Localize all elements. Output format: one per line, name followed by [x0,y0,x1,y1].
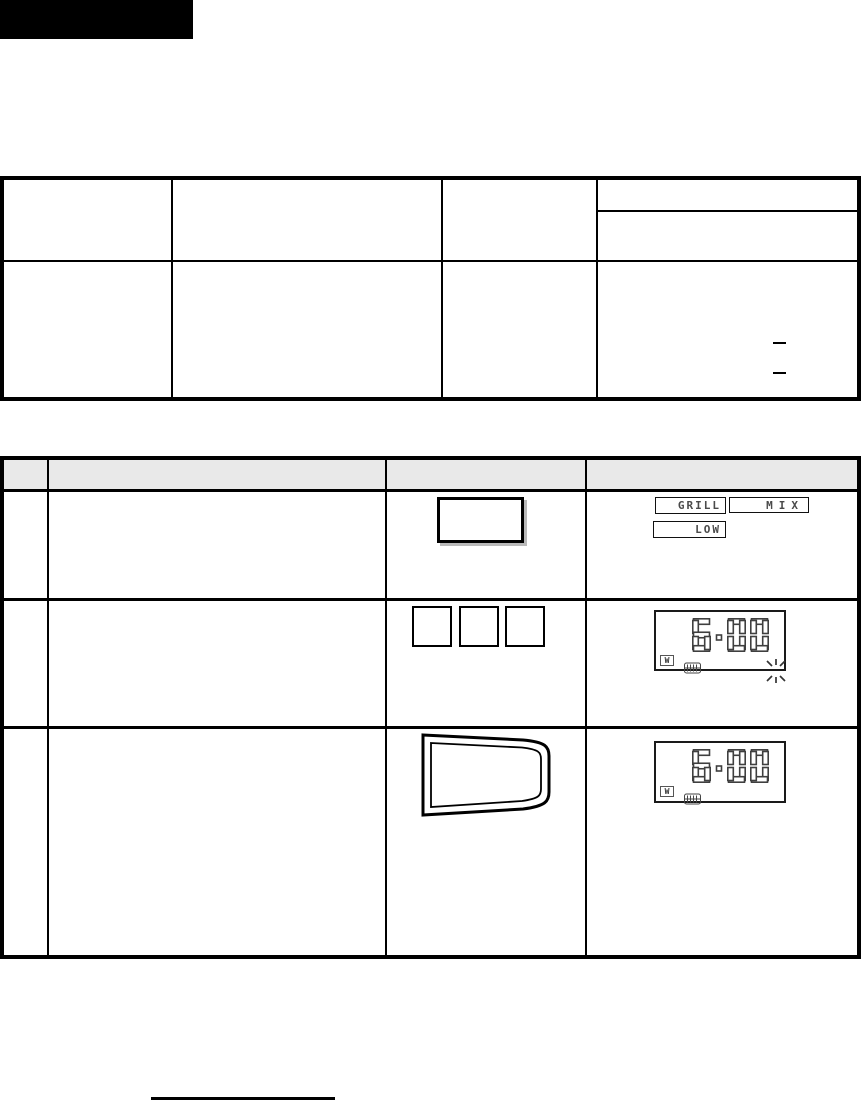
lcd-display-step2: W [654,610,786,671]
steps-table: GRILL MIX LOW W [0,456,861,959]
grill-indicator-box: GRILL [655,497,726,514]
row-divider [4,726,857,729]
column-divider [596,180,598,397]
section-heading-block [0,0,193,39]
footnote-rule [151,1097,335,1100]
mix-indicator-label: MIX [766,499,804,512]
column-divider [441,180,443,397]
low-indicator-box: LOW [653,521,726,538]
watt-indicator: W [660,786,674,797]
table-border-top [0,456,861,460]
lcd-display-step3: W [654,741,786,803]
fraction-bar [773,372,786,374]
watt-indicator: W [660,655,674,666]
column-divider [47,460,49,955]
table-header-band [4,460,857,489]
table-border-right [857,176,861,401]
row-divider [4,598,857,601]
grill-element-icon [684,662,701,674]
table-border-bottom [0,397,861,401]
row-divider [4,260,857,262]
blinking-indicator-icon [764,654,788,686]
grill-indicator-label: GRILL [678,499,721,512]
fraction-bar [773,342,786,344]
seven-segment-time [692,749,770,784]
mode-key-illustration [437,497,524,543]
table-border-top [0,176,861,180]
header-divider [4,489,857,492]
table-border-bottom [0,955,861,959]
number-key-illustration [505,606,545,647]
manual-page: GRILL MIX LOW W [0,0,864,1103]
seven-segment-time [692,618,770,653]
table-border-left [0,456,4,959]
mix-indicator-box: MIX [729,497,809,513]
start-key-illustration [420,732,556,818]
table-border-right [857,456,861,959]
settings-table [0,176,861,401]
column-divider [585,460,587,955]
number-key-illustration [412,606,452,647]
column-divider [171,180,173,397]
grill-element-icon [684,793,701,805]
sub-row-divider [596,210,857,212]
table-border-left [0,176,4,401]
low-indicator-label: LOW [695,523,721,536]
number-key-illustration [459,606,499,647]
column-divider [385,460,387,955]
